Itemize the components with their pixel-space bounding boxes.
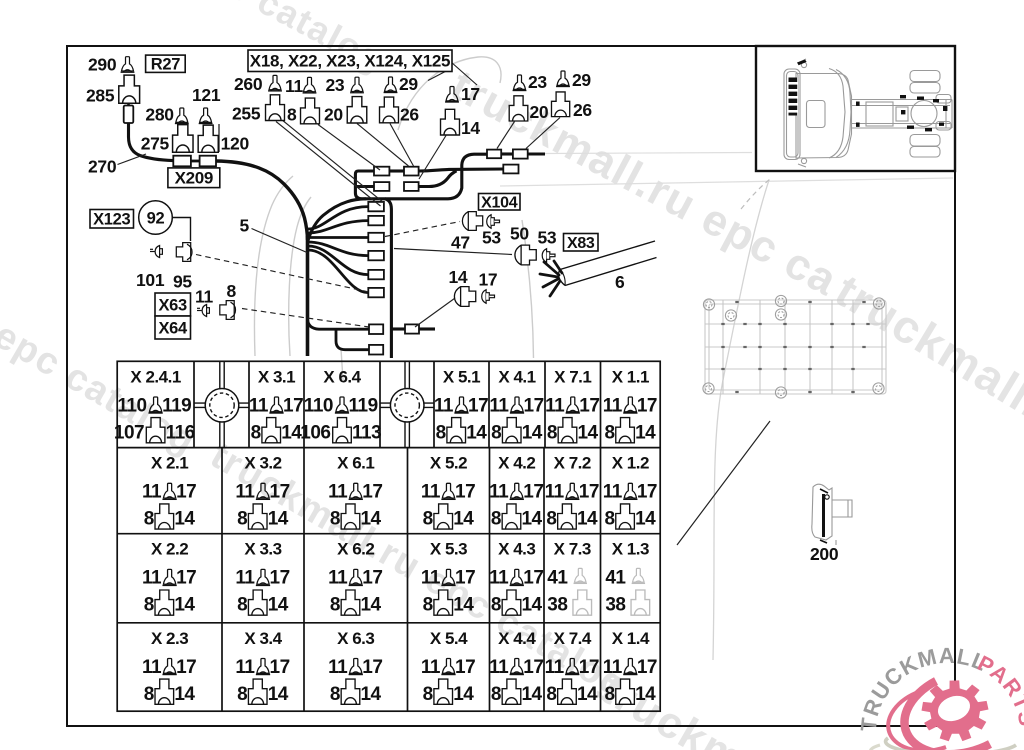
svg-text:8: 8: [605, 422, 615, 443]
svg-text:8: 8: [605, 509, 615, 530]
svg-text:X 6.4: X 6.4: [323, 367, 361, 386]
svg-text:92: 92: [147, 210, 165, 228]
svg-text:11: 11: [489, 568, 509, 589]
svg-text:106: 106: [300, 422, 330, 443]
svg-text:121: 121: [192, 85, 221, 105]
svg-text:X 5.4: X 5.4: [430, 629, 468, 648]
svg-text:20: 20: [324, 105, 343, 125]
svg-text:X 4.2: X 4.2: [498, 454, 535, 473]
svg-text:14: 14: [521, 595, 542, 616]
svg-text:14: 14: [449, 267, 468, 287]
svg-text:X 2.4.1: X 2.4.1: [130, 367, 180, 386]
svg-text:X 4.4: X 4.4: [498, 629, 536, 648]
svg-text:14: 14: [360, 595, 381, 616]
svg-text:11: 11: [142, 482, 162, 503]
svg-text:285: 285: [86, 86, 115, 106]
svg-text:17: 17: [362, 568, 382, 589]
svg-text:X 2.1: X 2.1: [151, 454, 188, 473]
svg-text:8: 8: [287, 105, 297, 125]
svg-text:X18, X22, X23, X124, X125: X18, X22, X23, X124, X125: [250, 51, 450, 70]
svg-text:11: 11: [235, 482, 255, 503]
svg-text:38: 38: [547, 595, 567, 616]
svg-text:11: 11: [603, 657, 623, 678]
svg-text:X 3.1: X 3.1: [258, 367, 295, 386]
svg-text:290: 290: [88, 55, 117, 75]
svg-text:23: 23: [326, 75, 345, 95]
svg-text:11: 11: [545, 395, 565, 416]
svg-text:275: 275: [141, 134, 170, 154]
svg-text:11: 11: [603, 395, 623, 416]
svg-text:8: 8: [491, 684, 501, 705]
svg-text:29: 29: [399, 74, 418, 94]
svg-text:X 6.2: X 6.2: [337, 540, 374, 559]
svg-text:11: 11: [489, 657, 509, 678]
svg-text:8: 8: [546, 684, 556, 705]
svg-text:X 4.3: X 4.3: [498, 540, 535, 559]
svg-text:41: 41: [605, 568, 626, 589]
svg-text:X 3.4: X 3.4: [244, 629, 282, 648]
svg-text:119: 119: [349, 395, 378, 416]
svg-text:X 5.1: X 5.1: [443, 367, 480, 386]
svg-text:11: 11: [142, 657, 162, 678]
svg-text:17: 17: [524, 395, 544, 416]
svg-text:14: 14: [577, 509, 598, 530]
svg-text:200: 200: [810, 544, 839, 564]
svg-text:8: 8: [330, 684, 340, 705]
svg-text:107: 107: [114, 422, 144, 443]
svg-text:X 7.1: X 7.1: [554, 367, 591, 386]
svg-text:11: 11: [328, 568, 348, 589]
svg-text:120: 120: [221, 134, 250, 154]
svg-text:8: 8: [237, 509, 247, 530]
svg-text:14: 14: [577, 684, 598, 705]
svg-text:X 2.3: X 2.3: [151, 629, 188, 648]
svg-text:14: 14: [521, 509, 542, 530]
svg-text:23: 23: [528, 72, 547, 92]
svg-text:8: 8: [144, 595, 154, 616]
svg-text:17: 17: [523, 657, 543, 678]
svg-text:X 5.3: X 5.3: [430, 540, 467, 559]
svg-text:5: 5: [240, 216, 250, 236]
svg-text:14: 14: [453, 509, 474, 530]
svg-text:14: 14: [635, 422, 656, 443]
svg-text:8: 8: [491, 509, 501, 530]
svg-text:255: 255: [232, 104, 261, 124]
svg-text:17: 17: [579, 657, 599, 678]
svg-text:14: 14: [453, 595, 474, 616]
svg-text:X64: X64: [158, 320, 188, 338]
svg-text:113: 113: [352, 422, 381, 443]
svg-text:53: 53: [482, 228, 501, 248]
svg-text:X 7.3: X 7.3: [554, 540, 591, 559]
svg-text:8: 8: [237, 684, 247, 705]
svg-text:17: 17: [270, 482, 290, 503]
svg-text:17: 17: [637, 657, 657, 678]
svg-text:14: 14: [635, 684, 656, 705]
svg-text:11: 11: [421, 657, 441, 678]
svg-text:X 3.3: X 3.3: [244, 540, 281, 559]
svg-text:X 4.1: X 4.1: [498, 367, 535, 386]
svg-text:14: 14: [268, 684, 289, 705]
svg-text:X 7.4: X 7.4: [554, 629, 592, 648]
svg-text:29: 29: [572, 70, 591, 90]
svg-text:X 5.2: X 5.2: [430, 454, 467, 473]
svg-text:11: 11: [603, 482, 623, 503]
svg-text:8: 8: [436, 422, 446, 443]
svg-text:17: 17: [523, 568, 543, 589]
svg-text:270: 270: [88, 157, 117, 177]
svg-text:8: 8: [423, 684, 433, 705]
svg-text:11: 11: [545, 657, 565, 678]
svg-text:17: 17: [283, 395, 303, 416]
svg-text:X 6.3: X 6.3: [337, 629, 374, 648]
svg-text:116: 116: [166, 422, 195, 443]
svg-text:X 1.1: X 1.1: [612, 367, 649, 386]
svg-text:14: 14: [268, 509, 289, 530]
svg-text:8: 8: [144, 684, 154, 705]
svg-text:11: 11: [235, 568, 255, 589]
svg-text:14: 14: [461, 118, 480, 138]
svg-text:11: 11: [489, 395, 509, 416]
svg-text:17: 17: [176, 482, 196, 503]
svg-text:14: 14: [268, 595, 289, 616]
svg-text:17: 17: [455, 482, 475, 503]
svg-text:14: 14: [522, 422, 543, 443]
svg-text:11: 11: [328, 482, 348, 503]
svg-text:11: 11: [285, 76, 303, 96]
svg-text:17: 17: [579, 482, 599, 503]
svg-text:X 1.3: X 1.3: [612, 540, 649, 559]
svg-text:14: 14: [281, 422, 302, 443]
svg-text:8: 8: [423, 595, 433, 616]
svg-text:8: 8: [237, 595, 247, 616]
svg-text:11: 11: [142, 568, 162, 589]
svg-text:X63: X63: [158, 297, 187, 315]
svg-text:17: 17: [270, 568, 290, 589]
svg-text:8: 8: [605, 684, 615, 705]
svg-text:17: 17: [468, 395, 488, 416]
svg-text:260: 260: [234, 74, 263, 94]
svg-text:8: 8: [546, 509, 556, 530]
svg-text:26: 26: [573, 100, 592, 120]
svg-text:17: 17: [270, 657, 290, 678]
svg-text:11: 11: [421, 568, 441, 589]
svg-text:14: 14: [360, 684, 381, 705]
svg-text:17: 17: [362, 657, 382, 678]
svg-text:17: 17: [479, 270, 498, 290]
svg-text:8: 8: [491, 422, 501, 443]
svg-text:14: 14: [453, 684, 474, 705]
svg-text:14: 14: [577, 422, 598, 443]
svg-text:14: 14: [360, 509, 381, 530]
svg-text:X 2.2: X 2.2: [151, 540, 188, 559]
svg-text:17: 17: [523, 482, 543, 503]
svg-text:8: 8: [423, 509, 433, 530]
svg-text:8: 8: [227, 281, 237, 301]
svg-text:X104: X104: [481, 194, 518, 211]
svg-text:11: 11: [421, 482, 441, 503]
svg-text:14: 14: [635, 509, 656, 530]
svg-text:17: 17: [362, 482, 382, 503]
svg-text:11: 11: [545, 482, 565, 503]
svg-text:17: 17: [579, 395, 599, 416]
svg-text:14: 14: [174, 684, 195, 705]
svg-text:119: 119: [162, 395, 191, 416]
svg-text:47: 47: [451, 233, 470, 253]
svg-text:20: 20: [530, 102, 549, 122]
svg-text:14: 14: [521, 684, 542, 705]
svg-text:50: 50: [510, 224, 529, 244]
svg-text:53: 53: [538, 228, 557, 248]
svg-text:14: 14: [174, 509, 195, 530]
svg-text:X 7.2: X 7.2: [554, 454, 591, 473]
svg-text:8: 8: [330, 509, 340, 530]
svg-text:17: 17: [455, 657, 475, 678]
svg-text:11: 11: [434, 395, 454, 416]
svg-text:11: 11: [328, 657, 348, 678]
svg-text:X83: X83: [567, 235, 595, 252]
svg-text:11: 11: [489, 482, 509, 503]
svg-text:X209: X209: [175, 168, 214, 187]
svg-text:17: 17: [637, 395, 657, 416]
svg-text:X 6.1: X 6.1: [337, 454, 374, 473]
svg-text:X 1.2: X 1.2: [612, 454, 649, 473]
svg-text:8: 8: [251, 422, 261, 443]
svg-text:8: 8: [330, 595, 340, 616]
svg-text:R27: R27: [151, 55, 180, 73]
svg-text:14: 14: [466, 422, 487, 443]
svg-text:X 1.4: X 1.4: [612, 629, 650, 648]
svg-text:17: 17: [637, 482, 657, 503]
svg-text:6: 6: [615, 272, 625, 292]
svg-text:110: 110: [304, 395, 333, 416]
svg-text:26: 26: [400, 105, 419, 125]
svg-text:17: 17: [176, 657, 196, 678]
svg-text:41: 41: [547, 568, 568, 589]
svg-text:8: 8: [491, 595, 501, 616]
svg-text:95: 95: [173, 272, 192, 292]
svg-text:14: 14: [174, 595, 195, 616]
svg-text:280: 280: [145, 105, 174, 125]
svg-text:8: 8: [144, 509, 154, 530]
svg-text:110: 110: [117, 395, 146, 416]
svg-text:101: 101: [136, 270, 165, 290]
svg-text:X 3.2: X 3.2: [244, 454, 281, 473]
svg-text:11: 11: [235, 657, 255, 678]
svg-text:17: 17: [176, 568, 196, 589]
svg-text:11: 11: [249, 395, 269, 416]
svg-text:38: 38: [605, 595, 625, 616]
svg-text:11: 11: [195, 287, 213, 307]
svg-text:X123: X123: [93, 210, 130, 228]
svg-text:17: 17: [461, 84, 480, 104]
svg-text:8: 8: [547, 422, 557, 443]
svg-text:17: 17: [455, 568, 475, 589]
